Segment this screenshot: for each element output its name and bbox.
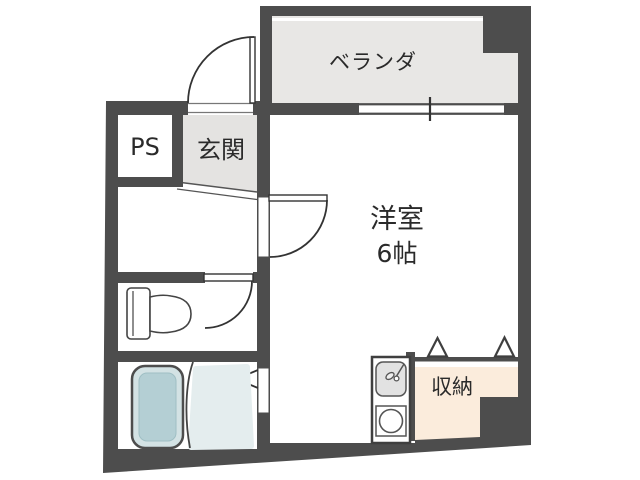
entrance-door bbox=[188, 37, 255, 115]
main-room-label: 洋室 bbox=[370, 204, 424, 235]
bathtub-icon bbox=[132, 366, 183, 448]
closet-front-gap bbox=[415, 362, 518, 368]
storage-label: 収納 bbox=[431, 375, 473, 399]
toilet-bottom-wall bbox=[106, 351, 270, 362]
shower-area bbox=[191, 367, 251, 447]
ps-bottom-wall bbox=[106, 177, 183, 187]
stove-burner-icon bbox=[380, 410, 403, 433]
entrance-door-leaf bbox=[250, 37, 255, 103]
toilet-top-wall-left bbox=[106, 272, 205, 283]
room-door-opening bbox=[258, 197, 269, 257]
ps-right-wall bbox=[172, 115, 183, 187]
room-door-leaf bbox=[269, 195, 327, 201]
kitchen-unit bbox=[372, 357, 410, 443]
veranda-label: ベランダ bbox=[329, 50, 417, 74]
floor-plan: ベランダ PS 玄関 洋室 6帖 収納 bbox=[0, 0, 640, 480]
bathtub-basin bbox=[139, 373, 176, 441]
main-room-size-label: 6帖 bbox=[377, 239, 418, 268]
toilet-bowl bbox=[150, 295, 191, 332]
entrance-door-arc bbox=[188, 37, 254, 103]
toilet-top-wall-right bbox=[253, 272, 270, 283]
pipe-space-label: PS bbox=[130, 133, 160, 161]
toilet-tank bbox=[127, 288, 150, 339]
bathroom-door-opening bbox=[258, 368, 269, 413]
entrance-label: 玄関 bbox=[197, 136, 245, 164]
floor-plan-page: ベランダ PS 玄関 洋室 6帖 収納 bbox=[0, 0, 640, 480]
toilet-door-leaf bbox=[204, 274, 253, 281]
